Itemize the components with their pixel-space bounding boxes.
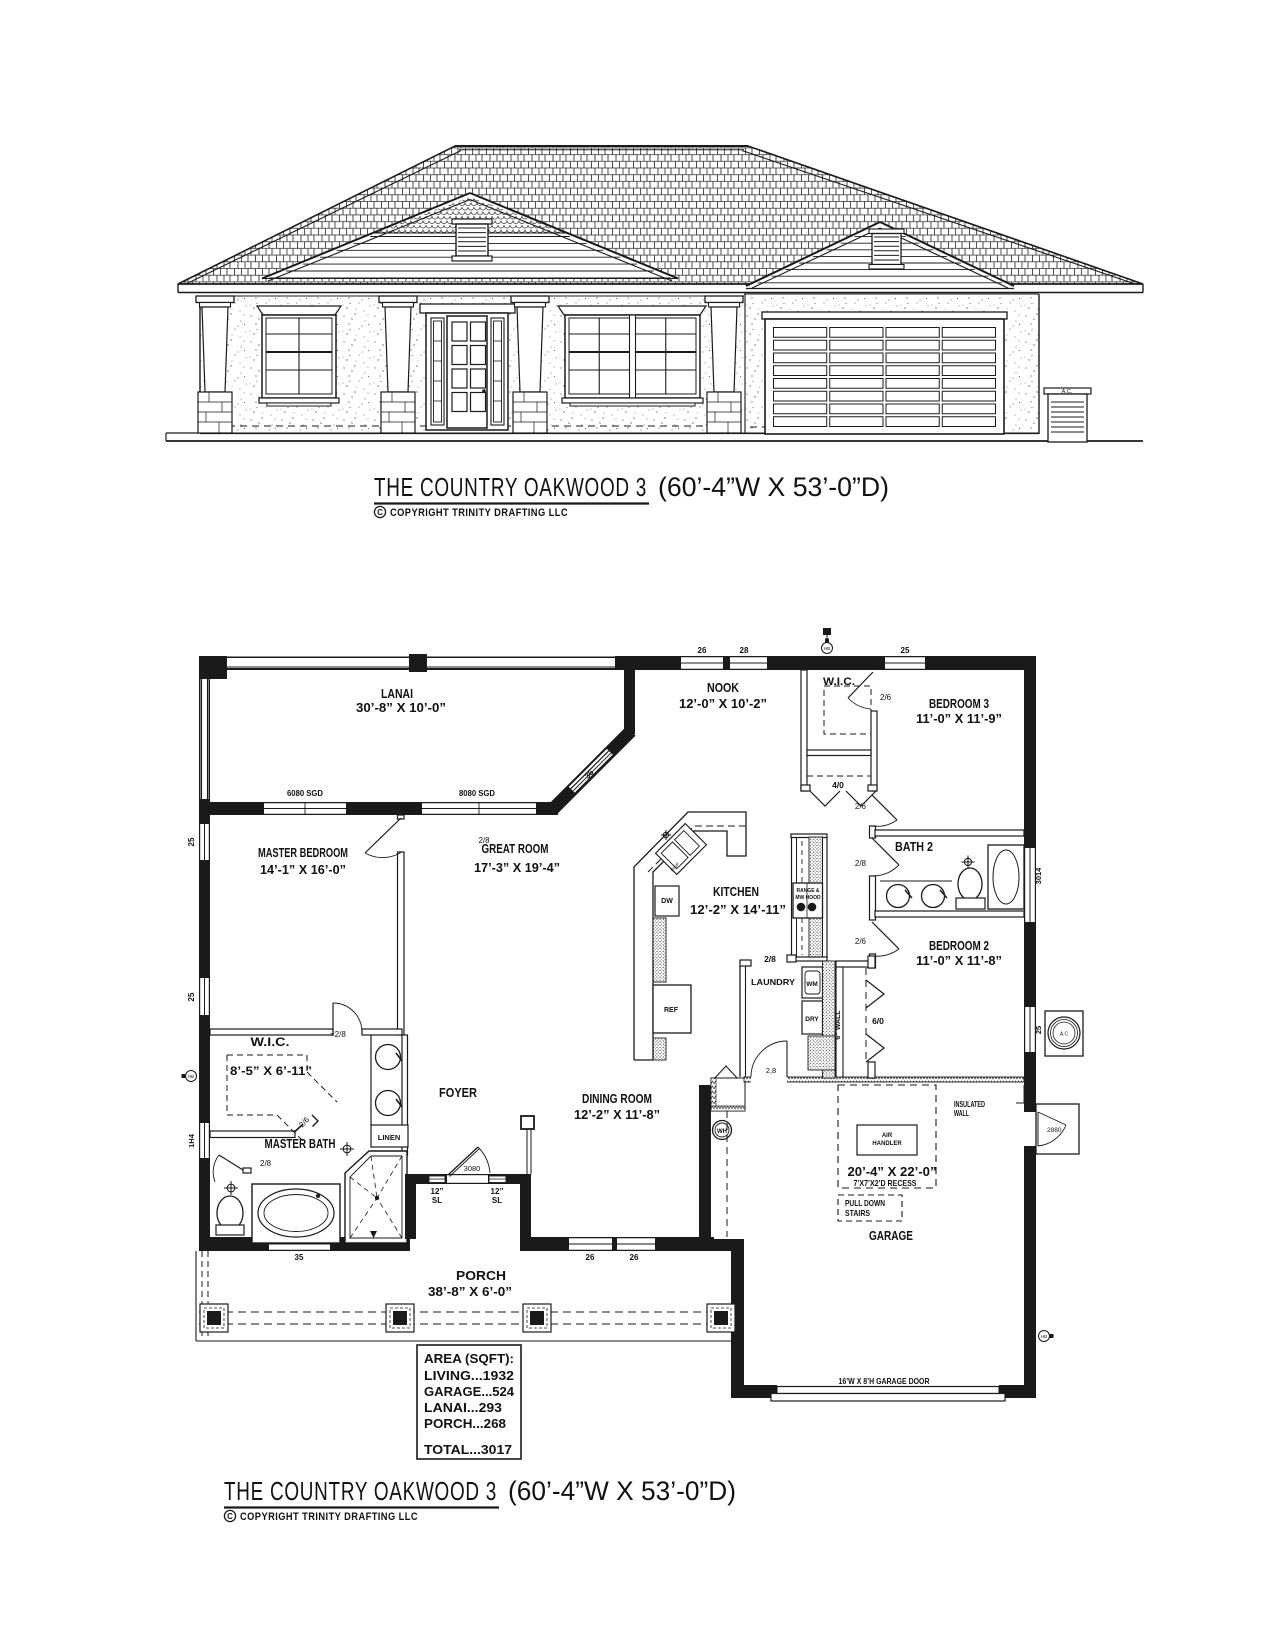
svg-text:RANGE &: RANGE &: [796, 888, 819, 894]
svg-text:COPYRIGHT TRINITY DRAFTING LLC: COPYRIGHT TRINITY DRAFTING LLC: [390, 507, 568, 519]
svg-text:W.I.C.: W.I.C.: [823, 676, 855, 688]
svg-text:AREA (SQFT):: AREA (SQFT):: [424, 1351, 514, 1366]
svg-text:REF: REF: [664, 1007, 679, 1014]
svg-text:THE COUNTRY OAKWOOD 3: THE COUNTRY OAKWOOD 3: [224, 1476, 497, 1506]
svg-text:INSULATED: INSULATED: [954, 1100, 985, 1109]
svg-text:17’-3” X 19’-4”: 17’-3” X 19’-4”: [474, 861, 560, 875]
svg-text:THE COUNTRY OAKWOOD 3: THE COUNTRY OAKWOOD 3: [374, 472, 647, 502]
svg-text:W.I.C.: W.I.C.: [251, 1035, 290, 1049]
svg-text:C: C: [377, 508, 383, 517]
svg-text:8’-5” X 6’-11”: 8’-5” X 6’-11”: [230, 1064, 312, 1078]
svg-text:COPYRIGHT TRINITY DRAFTING LLC: COPYRIGHT TRINITY DRAFTING LLC: [240, 1511, 418, 1523]
svg-text:BATH 2: BATH 2: [895, 840, 933, 854]
svg-text:2/8: 2/8: [855, 859, 867, 868]
svg-text:26: 26: [586, 1253, 595, 1262]
svg-text:STAIRS: STAIRS: [845, 1208, 870, 1218]
svg-text:25: 25: [1034, 1026, 1043, 1034]
svg-text:WALL: WALL: [954, 1109, 969, 1118]
svg-text:3080: 3080: [464, 1164, 481, 1173]
svg-text:14’-1” X 16’-0”: 14’-1” X 16’-0”: [260, 863, 346, 877]
svg-text:(60’-4”W X 53’-0”D): (60’-4”W X 53’-0”D): [658, 472, 889, 502]
svg-text:WM: WM: [806, 981, 818, 988]
svg-text:TOTAL...3017: TOTAL...3017: [424, 1442, 512, 1457]
svg-text:2/8: 2/8: [764, 954, 776, 964]
svg-text:DINING ROOM: DINING ROOM: [582, 1092, 652, 1106]
svg-text:38’-8” X 6’-0”: 38’-8” X 6’-0”: [428, 1285, 512, 1299]
svg-text:LIVING...1932: LIVING...1932: [424, 1368, 514, 1383]
svg-text:LINEN: LINEN: [378, 1133, 401, 1142]
svg-text:WH: WH: [717, 1129, 727, 1135]
svg-text:MASTER BEDROOM: MASTER BEDROOM: [258, 846, 348, 860]
svg-text:12’-0” X 10’-2”: 12’-0” X 10’-2”: [679, 697, 767, 711]
svg-text:11’-0” X 11’-9”: 11’-0” X 11’-9”: [916, 712, 1002, 726]
svg-text:7’X7’X2’D RECESS: 7’X7’X2’D RECESS: [854, 1178, 917, 1188]
svg-text:A.C: A.C: [1060, 1032, 1069, 1038]
svg-text:25: 25: [187, 837, 196, 846]
svg-text:C: C: [227, 1512, 233, 1521]
svg-text:NOOK: NOOK: [707, 681, 739, 695]
svg-text:2/6: 2/6: [855, 937, 867, 946]
svg-text:GREAT ROOM: GREAT ROOM: [482, 842, 549, 856]
svg-text:SL: SL: [492, 1196, 502, 1205]
svg-text:28: 28: [740, 646, 749, 655]
svg-text:2,8: 2,8: [766, 1066, 776, 1075]
svg-text:MASTER BATH: MASTER BATH: [265, 1137, 336, 1151]
svg-text:12’-2” X 11’-8”: 12’-2” X 11’-8”: [574, 1108, 660, 1122]
svg-text:BEDROOM 3: BEDROOM 3: [929, 697, 989, 711]
svg-text:KITCHEN: KITCHEN: [713, 885, 759, 899]
svg-text:12”: 12”: [491, 1187, 504, 1196]
svg-text:DRY: DRY: [805, 1016, 819, 1023]
svg-text:11’-0” X 11’-8”: 11’-0” X 11’-8”: [916, 954, 1002, 968]
svg-text:SL: SL: [432, 1196, 442, 1205]
svg-text:26: 26: [698, 646, 707, 655]
svg-text:2880: 2880: [1047, 1127, 1062, 1134]
svg-text:HB: HB: [1041, 1334, 1047, 1339]
svg-text:PULL DOWN: PULL DOWN: [845, 1198, 885, 1208]
svg-text:8080 SGD: 8080 SGD: [459, 789, 495, 798]
svg-text:6/0: 6/0: [872, 1016, 884, 1026]
svg-text:1H4: 1H4: [187, 1133, 196, 1148]
svg-text:BEDROOM 2: BEDROOM 2: [929, 939, 989, 953]
svg-text:4/0: 4/0: [832, 780, 844, 790]
svg-text:20’-4” X 22’-0”: 20’-4” X 22’-0”: [848, 1164, 937, 1179]
svg-text:DW: DW: [661, 898, 673, 905]
svg-text:A.C.: A.C.: [1062, 389, 1073, 395]
svg-text:PORCH...268: PORCH...268: [424, 1416, 506, 1431]
svg-text:MW HOOD: MW HOOD: [795, 895, 821, 901]
svg-text:GARAGE: GARAGE: [869, 1228, 913, 1243]
svg-text:16’W X 8’H GARAGE DOOR: 16’W X 8’H GARAGE DOOR: [839, 1376, 930, 1386]
svg-text:AIR: AIR: [882, 1133, 893, 1139]
svg-text:2/8: 2/8: [260, 1159, 272, 1168]
svg-text:30’-8” X 10’-0”: 30’-8” X 10’-0”: [356, 701, 446, 715]
svg-text:25: 25: [901, 646, 910, 655]
svg-text:=2/8: =2/8: [330, 1030, 346, 1039]
svg-text:26: 26: [630, 1253, 639, 1262]
svg-text:3014: 3014: [1034, 867, 1043, 885]
svg-text:12”: 12”: [431, 1187, 444, 1196]
svg-text:25: 25: [187, 992, 196, 1001]
svg-text:6080 SGD: 6080 SGD: [287, 789, 323, 798]
svg-text:HANDLER: HANDLER: [872, 1141, 902, 1147]
svg-text:2/6: 2/6: [880, 693, 892, 702]
svg-text:GARAGE...524: GARAGE...524: [424, 1384, 515, 1399]
svg-text:LANAI...293: LANAI...293: [424, 1400, 502, 1415]
svg-text:12’-2” X 14’-11”: 12’-2” X 14’-11”: [690, 903, 786, 917]
svg-text:35: 35: [295, 1253, 304, 1262]
svg-text:LANAI: LANAI: [381, 687, 413, 701]
svg-text:PORCH: PORCH: [456, 1269, 506, 1283]
svg-text:FOYER: FOYER: [439, 1086, 477, 1100]
svg-text:LAUNDRY: LAUNDRY: [751, 977, 795, 987]
svg-text:(60’-4”W X 53’-0”D): (60’-4”W X 53’-0”D): [508, 1476, 736, 1506]
svg-text:HB: HB: [824, 646, 830, 651]
svg-text:HB: HB: [188, 1074, 194, 1079]
